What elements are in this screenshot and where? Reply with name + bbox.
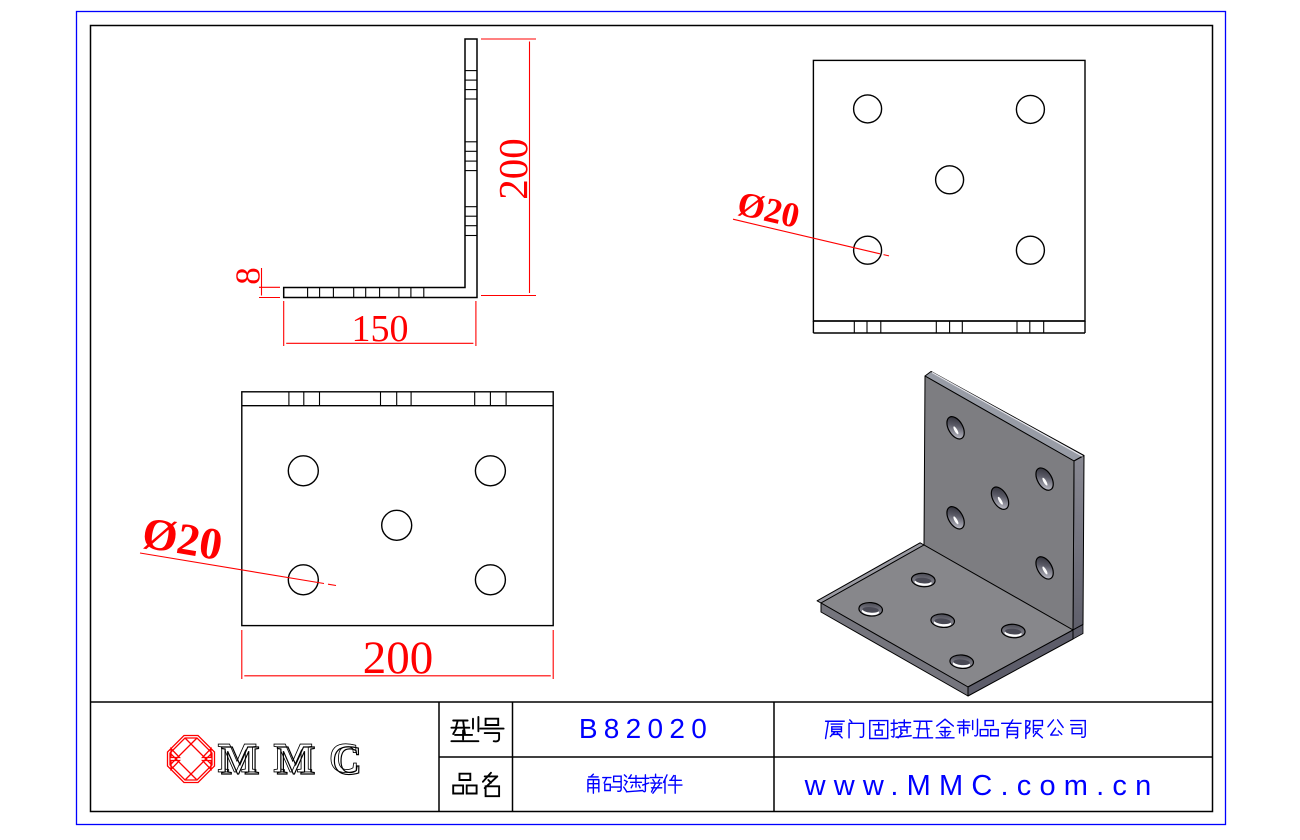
svg-text:200: 200 bbox=[363, 632, 434, 684]
svg-text:MMC: MMC bbox=[221, 737, 379, 783]
svg-text:8: 8 bbox=[229, 267, 268, 285]
svg-text:www.MMC.com.cn: www.MMC.com.cn bbox=[804, 770, 1160, 802]
svg-text:150: 150 bbox=[352, 308, 409, 350]
svg-text:200: 200 bbox=[490, 138, 536, 200]
svg-text:B82020: B82020 bbox=[579, 713, 713, 744]
